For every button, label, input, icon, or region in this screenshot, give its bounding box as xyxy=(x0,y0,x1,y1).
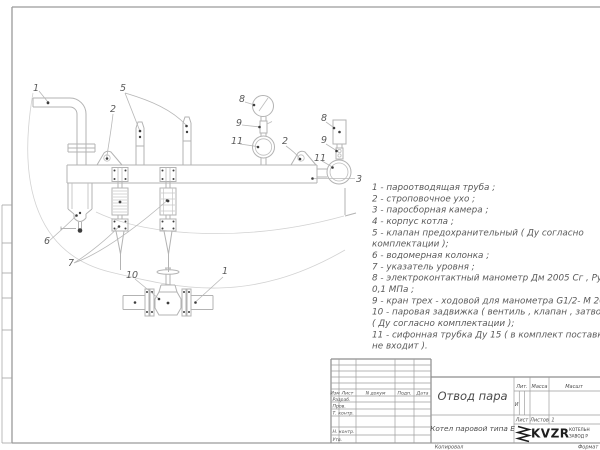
parts-list-line: 11 - сифонная трубка Ду 15 ( в комплект … xyxy=(372,330,600,340)
parts-list-line: не входит ). xyxy=(372,342,428,352)
company-logo: KVZR КОТЕЛЬН ЗАВОД Р xyxy=(518,427,590,442)
water-gauge-column xyxy=(61,183,92,233)
pressure-gauge-assembly-right xyxy=(317,120,351,184)
callout-6: 6 xyxy=(44,214,78,247)
col-podp: Подп. xyxy=(398,391,412,397)
col-izm: Изм xyxy=(330,391,340,397)
logo-subtext-1: КОТЕЛЬН xyxy=(569,427,590,432)
gauge-dial-icon xyxy=(253,96,274,117)
lifting-eye-left xyxy=(97,151,122,165)
row-t-kontr: Т. контр. xyxy=(333,411,354,417)
parts-list-line: 8 - электроконтактный манометр Дм 2005 С… xyxy=(372,274,600,284)
parts-list-line: 5 - клапан предохранительный ( Ду соглас… xyxy=(372,228,584,238)
massa-label: Масса xyxy=(532,384,548,390)
callout-label: 1 xyxy=(33,83,39,94)
lit-label: Лит. xyxy=(515,384,528,390)
col-data: Дата xyxy=(416,391,429,397)
footer-format: Формат xyxy=(578,445,599,450)
row-prov: Пров. xyxy=(333,404,346,410)
siphon-tube-left xyxy=(253,133,275,165)
left-margin-fields xyxy=(2,205,12,443)
callout-2-right: 2 xyxy=(282,136,301,160)
callout-label: 6 xyxy=(44,236,50,247)
parts-list-line: 4 - корпус котла ; xyxy=(372,217,454,227)
logo-text: KVZR xyxy=(531,427,570,441)
callout-label: 8 xyxy=(239,94,245,105)
listov-label: Листов xyxy=(529,418,549,424)
callout-1-bottom: 1 xyxy=(196,266,228,302)
callout-label: 5 xyxy=(120,83,126,94)
document-title: Отвод пара xyxy=(437,389,507,403)
row-razrab: Разраб. xyxy=(333,397,351,403)
callout-label: 11 xyxy=(231,136,243,147)
steam-pipe xyxy=(33,98,95,165)
three-way-cock-right xyxy=(336,148,343,159)
three-way-cock-left xyxy=(260,121,272,133)
callout-label: 3 xyxy=(356,174,362,185)
list-label: Лист xyxy=(515,418,530,424)
safety-valve-right xyxy=(183,117,191,165)
coil-spring-icon xyxy=(518,427,529,442)
row-utv: Утв. xyxy=(333,437,343,443)
col-list: Лист xyxy=(341,391,354,397)
callout-11-left: 11 xyxy=(231,136,259,148)
row-n-kontr: Н. контр. xyxy=(333,429,355,435)
callout-3: 3 xyxy=(314,174,362,185)
callout-1-top: 1 xyxy=(33,83,49,104)
callout-9-left: 9 xyxy=(236,118,261,129)
callout-5: 5 xyxy=(120,83,188,132)
pipe-flange xyxy=(68,144,95,152)
callout-label: 7 xyxy=(68,258,74,269)
gauge-needle xyxy=(259,98,268,111)
masshtab-label: Масшт xyxy=(565,384,584,390)
parts-list-line: 6 - водомерная колонка ; xyxy=(372,251,489,261)
callouts: 1 5 2 8 9 11 2 8 xyxy=(33,83,362,302)
parts-list-line: комплектации ); xyxy=(372,240,449,250)
callout-7: 7 xyxy=(68,199,168,269)
callout-label: 1 xyxy=(222,266,228,277)
title-block: Изм Лист N докум Подп. Дата Разраб. Пров… xyxy=(330,359,600,443)
parts-list: 1 - пароотводящая труба ; 2 - строповочн… xyxy=(372,183,600,352)
document-subtitle: Котел паровой типа Е xyxy=(430,424,515,433)
parts-list-line: 3 - паросборная камера ; xyxy=(372,206,488,216)
listov-value: 1 xyxy=(551,418,554,424)
steam-drum xyxy=(67,165,317,183)
pressure-gauge-assembly-left xyxy=(253,96,275,166)
safety-valve-left xyxy=(136,122,144,165)
logo-subtext-2: ЗАВОД Р xyxy=(569,434,588,439)
callout-label: 9 xyxy=(236,118,242,129)
technical-drawing: 1 5 2 8 9 11 2 8 xyxy=(0,0,600,450)
parts-list-line: 1 - пароотводящая труба ; xyxy=(372,183,495,193)
parts-list-line: 2 - строповочное ухо ; xyxy=(372,194,475,204)
parts-list-line: 7 - указатель уровня ; xyxy=(372,262,475,272)
drawing-sheet: 1 5 2 8 9 11 2 8 xyxy=(0,0,600,450)
lit-value: И xyxy=(515,402,519,408)
parts-list-line: 9 - кран трех - ходовой для манометра G1… xyxy=(372,296,600,306)
parts-list-line: 10 - паровая задвижка ( вентиль , клапан… xyxy=(372,308,600,318)
callout-label: 2 xyxy=(110,104,116,115)
callout-label: 2 xyxy=(282,136,288,147)
callout-label: 10 xyxy=(126,270,138,281)
footer-kopiroval: Копировал xyxy=(435,445,464,450)
parts-list-line: 0,1 МПа ; xyxy=(372,285,414,295)
sheet-footer: Копировал Формат xyxy=(435,445,600,450)
callout-8-left: 8 xyxy=(239,94,255,106)
col-n-dokum: N докум xyxy=(366,391,386,397)
parts-list-line: ( Ду согласно комплектации ); xyxy=(372,319,514,329)
